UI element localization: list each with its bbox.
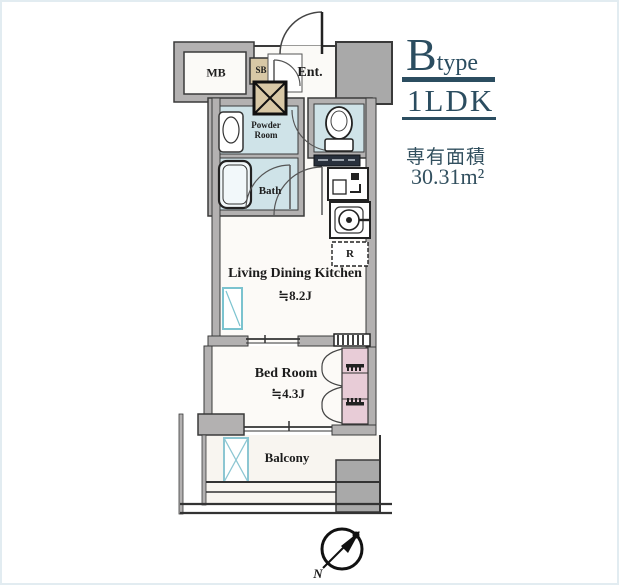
area-number: 30.31 [411, 164, 461, 189]
stove-icon [330, 202, 370, 238]
plan-layout: 1LDK [407, 85, 494, 116]
balcony-label: Balcony [265, 450, 310, 466]
bath-label: Bath [259, 185, 282, 197]
powder-room-label-1: Powder [251, 120, 281, 130]
hatch-strip-box [334, 334, 370, 346]
ac-unit-icon [224, 438, 248, 482]
area-unit: m² [461, 164, 485, 189]
balcony-outer-left [179, 414, 183, 514]
compass-needle-knob [353, 532, 360, 539]
washbasin-icon [219, 112, 243, 152]
bedroom-balcony-wall-left [198, 414, 244, 435]
sink-unit [328, 168, 368, 200]
powder-room-label-2: Room [255, 130, 278, 140]
sink-detail [351, 173, 359, 180]
plan-type-suffix: type [437, 51, 478, 75]
floorplan-page: MB SB Ent. Powder Room Bath Living Dinin… [0, 0, 619, 585]
window-icon [223, 288, 242, 329]
closet-icon [342, 348, 368, 424]
bedroom-size-label: ≒4.3J [271, 386, 305, 402]
plan-type-letter: B [406, 32, 437, 78]
plan-type-title: Btype [406, 32, 478, 78]
toilet-icon [325, 107, 353, 151]
compass-north-label: N [313, 566, 322, 582]
entrance-label: Ent. [297, 65, 322, 81]
stove-knob [346, 217, 352, 223]
ldk-label: Living Dining Kitchen [228, 266, 362, 282]
refrigerator-label: R [346, 248, 354, 260]
mb-label: MB [206, 66, 225, 81]
ps-crossbox-icon [254, 82, 286, 114]
compass-icon [322, 529, 362, 569]
toilet-tank [325, 139, 353, 151]
ldk-bedroom-wall-left [208, 336, 248, 346]
ldk-bedroom-wall-right [298, 336, 334, 346]
panel-divider-1 [402, 77, 495, 82]
panel-divider-2 [402, 117, 496, 120]
sink-icon [328, 168, 368, 200]
entrance-door-arc [280, 12, 322, 54]
bedroom-label: Bed Room [255, 366, 318, 382]
closet-shelves [342, 348, 368, 424]
toilet-bowl [326, 107, 352, 139]
sb-label: SB [255, 65, 266, 75]
area-value: 30.31m² [411, 164, 484, 190]
left-wall-bedroom [204, 346, 212, 418]
washer-band [314, 155, 360, 166]
ldk-size-label: ≒8.2J [278, 288, 312, 304]
bedroom-balcony-wall-right [332, 425, 376, 435]
hatch-strip [334, 334, 370, 346]
balcony-left-wall [202, 435, 206, 505]
gray-block [336, 42, 392, 104]
